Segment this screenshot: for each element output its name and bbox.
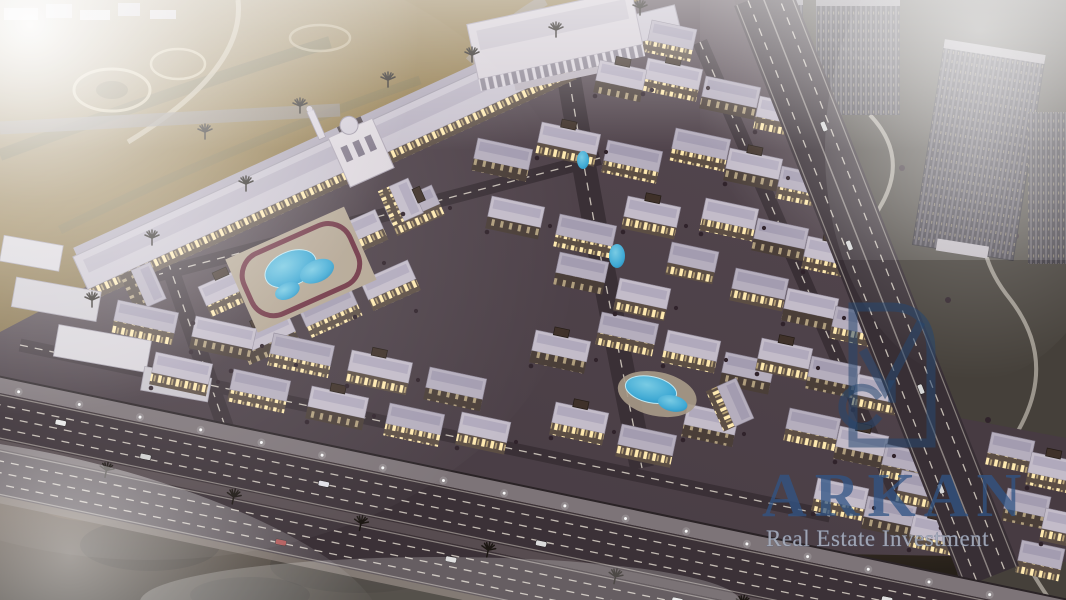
aerial-render: ARKAN Real Estate Investment — [0, 0, 1066, 600]
swimming-pool-small — [577, 151, 589, 169]
swimming-pool-small — [609, 244, 625, 268]
arkan-tagline: Real Estate Investment — [766, 526, 989, 551]
render-canvas: ARKAN Real Estate Investment — [0, 0, 1066, 600]
arkan-brand-text: ARKAN — [762, 462, 1029, 530]
